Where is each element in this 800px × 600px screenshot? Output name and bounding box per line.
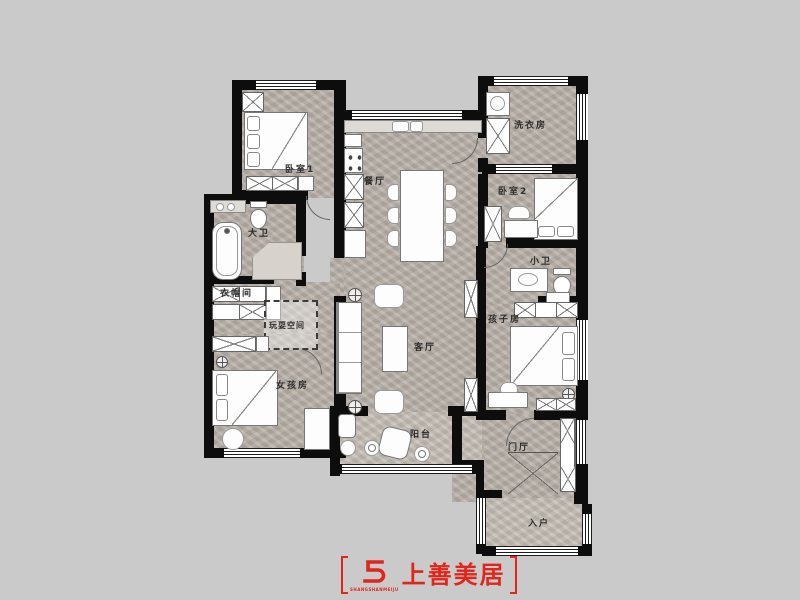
window-symbol [576, 94, 588, 140]
chair-symbol [500, 382, 518, 393]
cabinet-symbol [344, 230, 366, 258]
room-label-cloakroom: 衣帽间 [220, 290, 253, 299]
logo-brand-name: 上善美居 [402, 563, 506, 587]
wall-segment [574, 406, 588, 420]
kitchen-sink-symbol [392, 121, 409, 132]
wardrobe-symbol [212, 304, 266, 320]
room-label-laundry: 洗衣房 [514, 122, 547, 131]
room-label-bedroom2: 卧室2 [498, 188, 528, 197]
pillow-symbol [216, 374, 228, 396]
mop-sink-symbol [338, 414, 356, 438]
sofa-symbol [336, 302, 362, 394]
ceiling-light-symbol [348, 400, 362, 414]
tv-cabinet-symbol [464, 378, 478, 412]
wardrobe-symbol [246, 176, 298, 191]
wall-segment [582, 544, 592, 556]
room-label-entry-hall: 门厅 [508, 444, 530, 453]
toilet-tank [553, 268, 571, 275]
room-label-play-space: 玩耍空间 [269, 322, 305, 330]
coffee-table-symbol [382, 326, 408, 372]
dining-chair-symbol [445, 184, 457, 201]
dining-chair-symbol [387, 230, 399, 247]
wall-segment [476, 490, 502, 498]
armchair-symbol [374, 390, 404, 414]
window-symbol [342, 464, 472, 474]
blanket-fold [535, 179, 577, 219]
chair-symbol [508, 206, 530, 219]
cabinet-symbol [344, 202, 364, 228]
room-label-main-bath: 大卫 [248, 230, 270, 239]
tv-cabinet-symbol [464, 280, 478, 318]
pillow-symbol [247, 152, 260, 167]
pillow-symbol [216, 399, 228, 421]
cabinet-symbol [256, 336, 269, 352]
desk-symbol [488, 392, 528, 408]
basin-symbol [216, 203, 224, 211]
stool-symbol [222, 428, 244, 450]
room-label-bedroom1: 卧室1 [285, 166, 315, 175]
room-label-kids-room: 孩子房 [488, 316, 521, 325]
wall-segment [238, 190, 308, 200]
room-label-small-bath: 小卫 [530, 258, 552, 267]
floor-plan-canvas: 卧室1 餐厅 洗衣房 卧室2 大卫 小卫 衣帽间 玩耍空间 客厅 女孩房 孩子房… [0, 0, 800, 600]
blanket-fold [232, 371, 276, 425]
ceiling-light-symbol [216, 356, 228, 368]
fridge-symbol [344, 134, 362, 147]
toilet-tank [250, 201, 267, 208]
dining-chair-symbol [445, 230, 457, 247]
window-symbol [256, 80, 316, 90]
pillow-symbol [562, 332, 575, 355]
cabinet-symbol [298, 176, 314, 191]
dining-chair-symbol [387, 184, 399, 201]
wardrobe-symbol [212, 336, 256, 352]
logo-bracket-left [341, 556, 348, 594]
radiator-symbol [476, 498, 486, 544]
room-label-balcony: 阳台 [410, 431, 432, 440]
stove-symbol [344, 148, 363, 173]
window-symbol [496, 164, 552, 174]
basin-symbol [518, 273, 538, 286]
wardrobe-symbol [514, 302, 578, 318]
desk-symbol [304, 408, 330, 450]
pillow-symbol [557, 226, 574, 237]
wardrobe-symbol [242, 92, 264, 112]
dining-table-symbol [400, 170, 444, 262]
balcony-chair-inner [368, 444, 376, 452]
logo-monogram-icon [358, 559, 390, 587]
dining-chair-symbol [387, 207, 399, 224]
door-swing-symbol [508, 452, 558, 494]
pillow-symbol [562, 358, 575, 381]
dining-chair-symbol [445, 207, 457, 224]
blanket-fold [511, 327, 559, 385]
pillow-symbol [538, 226, 555, 237]
pillow-symbol [247, 116, 260, 131]
window-symbol [352, 110, 462, 120]
desk-symbol [504, 220, 538, 238]
wall-segment [582, 504, 592, 514]
room-label-dining: 餐厅 [364, 178, 386, 187]
cabinet-symbol [344, 174, 364, 200]
basin-symbol [227, 203, 235, 211]
logo-monogram: SHANGSHANMEIJU [350, 559, 399, 592]
blanket-fold [272, 113, 306, 169]
window-symbol [494, 76, 568, 86]
cabinet-symbol [486, 118, 510, 154]
armchair-symbol [374, 284, 404, 308]
room-label-foyer: 入户 [528, 520, 550, 529]
window-symbol [582, 514, 592, 544]
brand-logo: SHANGSHANMEIJU 上善美居 [341, 553, 517, 597]
logo-bracket-right [510, 556, 517, 594]
room-label-living-room: 客厅 [414, 344, 436, 353]
basin-symbol [340, 440, 356, 456]
cabinet-symbol [536, 398, 576, 411]
door-arc [306, 196, 330, 220]
pillow-symbol [247, 134, 260, 149]
faucet-symbol [224, 228, 230, 234]
cabinet-symbol [484, 206, 502, 242]
kitchen-sink-symbol [410, 121, 423, 132]
shoe-cabinet-symbol [560, 418, 576, 492]
washer-drum [490, 96, 505, 111]
room-label-girls-room: 女孩房 [276, 382, 309, 391]
ceiling-light-symbol [348, 288, 362, 302]
wall-segment [232, 80, 242, 198]
wall-segment [574, 464, 588, 504]
balcony-chair-inner [418, 450, 426, 458]
window-symbol [576, 420, 586, 464]
logo-subtext: SHANGSHANMEIJU [350, 588, 399, 592]
